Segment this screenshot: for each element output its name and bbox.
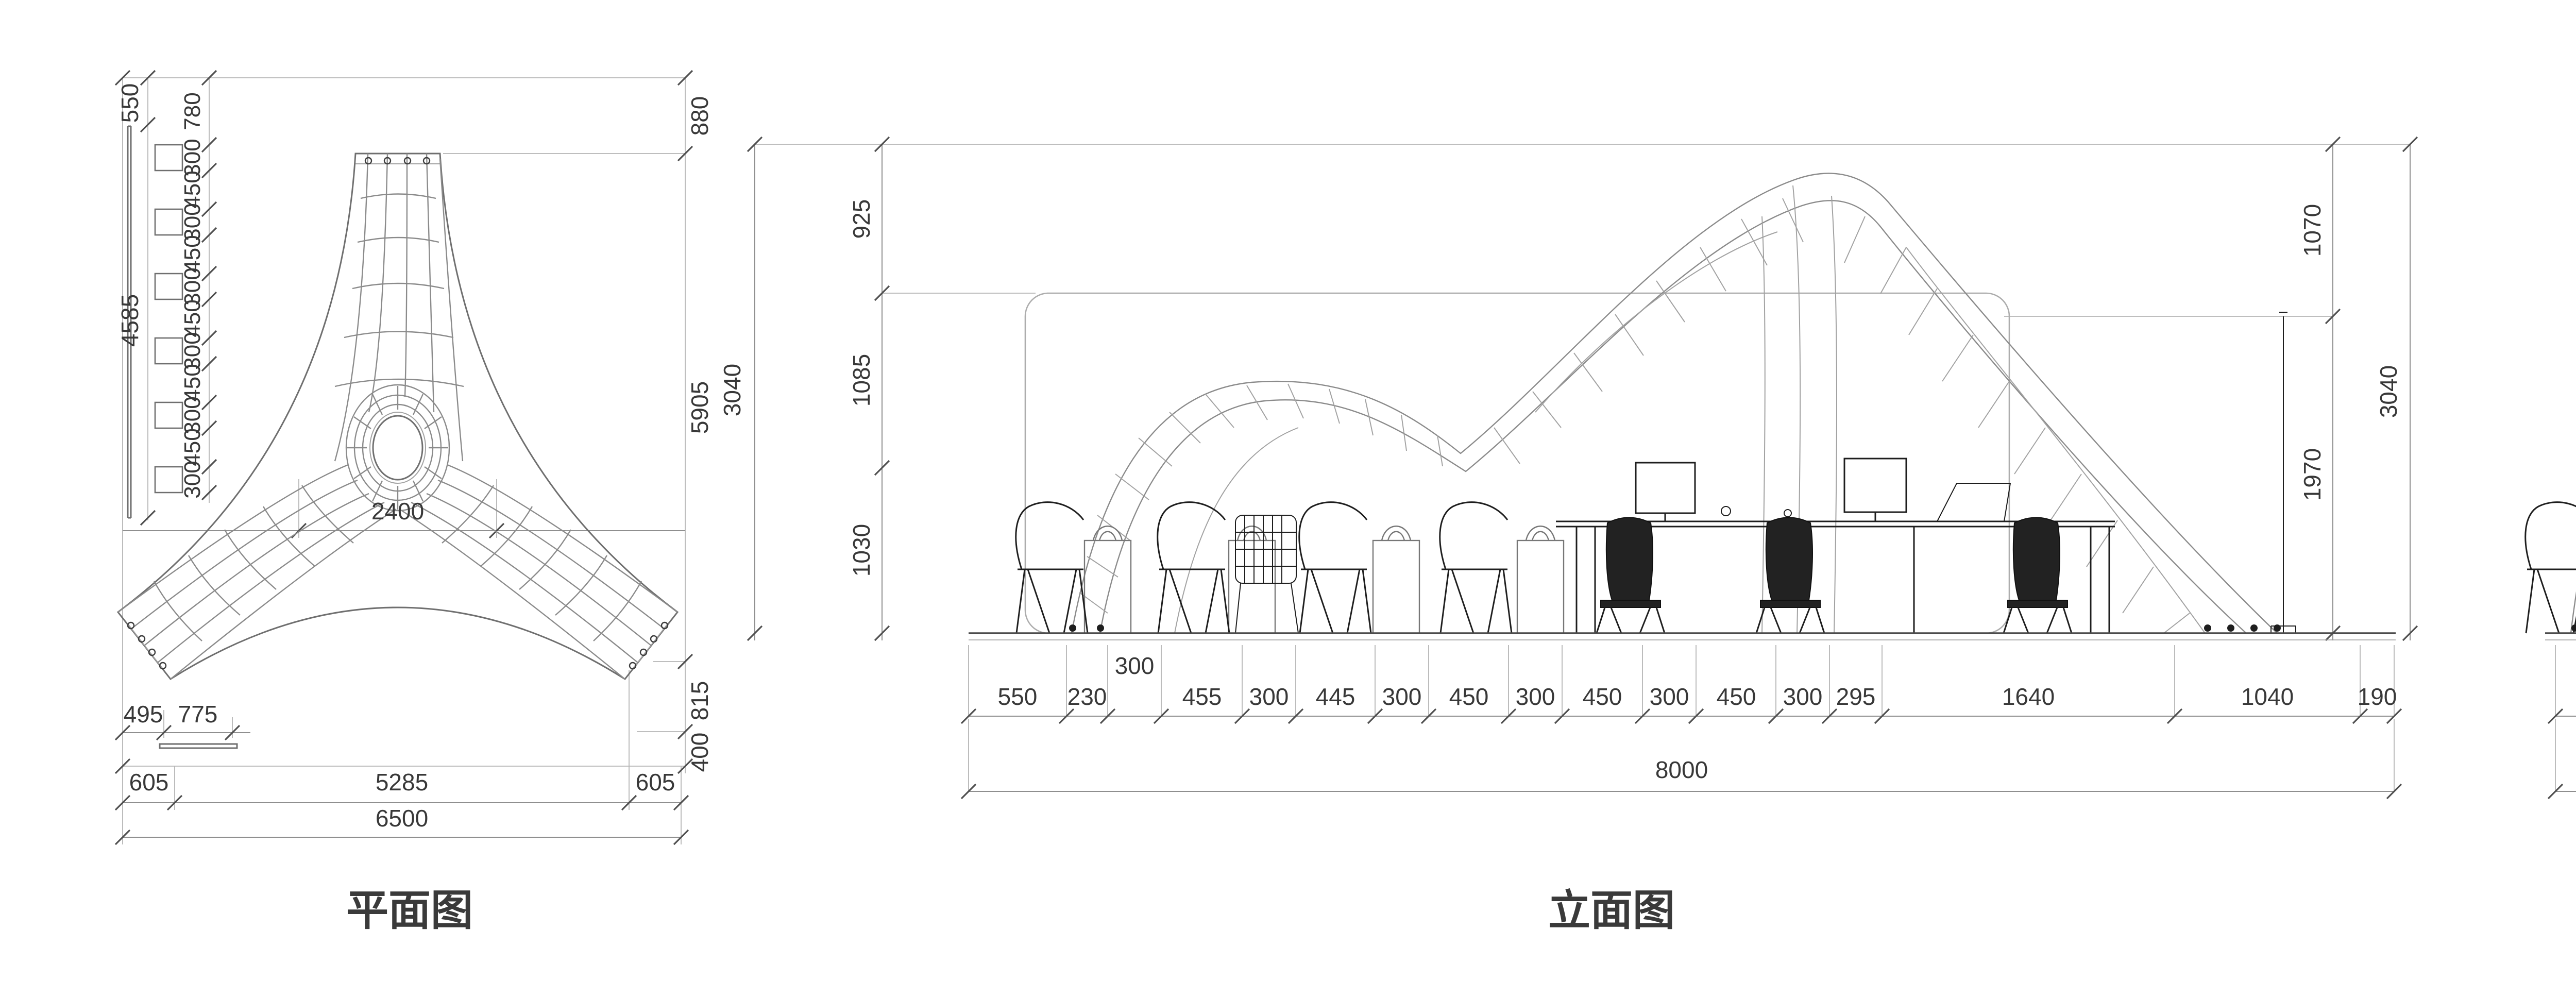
dim-label: 450 — [1449, 683, 1489, 710]
dim-label: 300 — [1115, 652, 1155, 679]
dim-label: 605 — [636, 769, 675, 796]
elev1-base-feet — [1069, 624, 2281, 632]
elev1-caption: 立面图 — [1548, 887, 1675, 934]
dim-label: 300 — [1650, 683, 1689, 710]
elev2-furniture — [2526, 459, 2576, 633]
dim-label: 3040 — [719, 364, 745, 416]
dim-label: 605 — [129, 769, 169, 796]
plan-view: 550 4585 780 300 450 300 450 300 450 300… — [115, 71, 713, 934]
dim-label: 5285 — [376, 769, 428, 796]
dim-label: 300 — [1249, 683, 1289, 710]
dim-label: 400 — [686, 733, 713, 772]
elevation-1: 3040 925 1085 1030 1070 1970 3040 300 55… — [719, 137, 2417, 934]
dim-label: 300 — [1783, 683, 1823, 710]
dim-label: 780 — [180, 92, 205, 130]
elev2-dome-gridshell — [2571, 162, 2576, 633]
plan-arm-left — [118, 465, 396, 679]
dim-label: 300 — [1382, 683, 1422, 710]
dim-label: 925 — [848, 199, 875, 239]
dim-label: 450 — [1583, 683, 1622, 710]
dim-label: 550 — [116, 83, 143, 123]
elevation-2: 12C18 925 310 1020 780 3040 655 2270 705… — [2526, 137, 2576, 934]
elev2-extension-lines — [2548, 137, 2576, 799]
monitor — [1636, 459, 1906, 521]
dim-label: 1030 — [848, 524, 875, 577]
dim-label: 450 — [1717, 683, 1756, 710]
dim-label: 1085 — [848, 354, 875, 407]
dim-label: 295 — [1836, 683, 1876, 710]
dim-label: 300 — [180, 461, 205, 498]
dim-label: 3040 — [2375, 365, 2402, 418]
dim-label: 450 — [180, 428, 205, 466]
dim-label: 550 — [998, 683, 1038, 710]
plan-caption: 平面图 — [346, 887, 473, 934]
dim-label: 450 — [180, 364, 205, 401]
plan-square-markers — [155, 145, 182, 493]
dim-label: 1070 — [2299, 204, 2326, 257]
elev1-side-pole — [2271, 312, 2296, 633]
dim-label: 450 — [180, 171, 205, 208]
dim-label: 230 — [1067, 683, 1107, 710]
drawing-sheet: 550 4585 780 300 450 300 450 300 450 300… — [0, 0, 2576, 998]
small-bar — [160, 744, 237, 748]
cad-drawing: 550 4585 780 300 450 300 450 300 450 300… — [0, 0, 2576, 998]
dim-label: 2400 — [371, 498, 424, 525]
plan-center-rings — [346, 385, 449, 511]
dim-label: 1640 — [2002, 683, 2055, 710]
plan-dimension-labels: 550 4585 780 300 450 300 450 300 450 300… — [116, 83, 713, 832]
laptop — [1721, 483, 2014, 521]
plan-arm-right — [399, 465, 677, 679]
dim-label: 8000 — [1655, 756, 1708, 783]
dim-label: 880 — [686, 96, 713, 136]
dim-label: 445 — [1316, 683, 1355, 710]
dim-label: 455 — [1182, 683, 1222, 710]
elev1-furniture — [1016, 459, 2115, 633]
dim-label: 495 — [124, 701, 163, 728]
dim-label: 815 — [686, 681, 713, 721]
plan-extension-lines — [123, 78, 685, 844]
dim-label: 775 — [178, 701, 218, 728]
elev1-gridshell — [1069, 173, 2281, 633]
dim-label: 1040 — [2241, 683, 2294, 710]
grid-back-chair — [1235, 515, 1298, 633]
dim-label: 6500 — [376, 805, 428, 832]
dim-label: 300 — [1516, 683, 1555, 710]
dim-label: 450 — [180, 235, 205, 273]
dim-label: 4585 — [116, 294, 143, 347]
elev1-dimension-labels: 3040 925 1085 1030 1070 1970 3040 300 55… — [719, 199, 2402, 783]
dim-label: 190 — [2358, 683, 2397, 710]
dim-label: 1970 — [2299, 448, 2326, 501]
dim-label: 5905 — [686, 381, 713, 434]
dim-label: 450 — [180, 299, 205, 337]
